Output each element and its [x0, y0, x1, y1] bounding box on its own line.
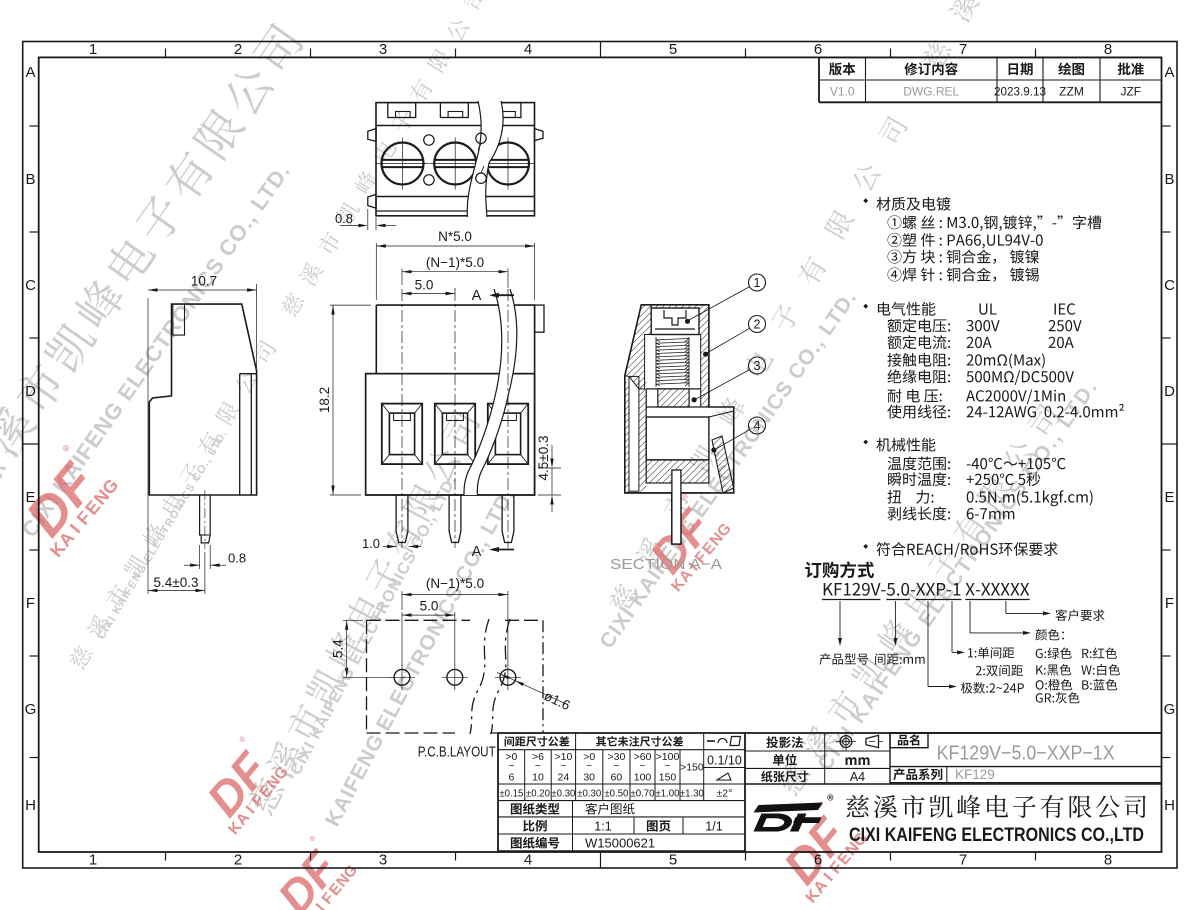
- svg-text:D: D: [1164, 383, 1175, 400]
- svg-text:5: 5: [669, 41, 677, 58]
- svg-text:(N−1)*5.0: (N−1)*5.0: [426, 255, 484, 270]
- svg-text:0.8: 0.8: [228, 551, 246, 566]
- svg-text:C: C: [1164, 277, 1175, 294]
- svg-text:150: 150: [659, 772, 677, 784]
- svg-text:±0.70: ±0.70: [631, 789, 655, 800]
- svg-text:3: 3: [379, 852, 387, 869]
- svg-text:(N−1)*5.0: (N−1)*5.0: [426, 576, 484, 591]
- svg-text:3: 3: [379, 41, 387, 58]
- svg-text:4: 4: [524, 852, 532, 869]
- svg-text:D: D: [25, 383, 36, 400]
- svg-text:5.0: 5.0: [415, 278, 434, 293]
- svg-text:6: 6: [814, 852, 822, 869]
- svg-text:A: A: [472, 288, 482, 304]
- svg-text:H: H: [25, 797, 36, 814]
- svg-text:~: ~: [535, 760, 541, 772]
- svg-text:F: F: [1165, 595, 1174, 612]
- svg-text:3: 3: [754, 359, 761, 373]
- svg-text:KF129: KF129: [955, 767, 995, 782]
- svg-text:H: H: [1164, 797, 1175, 814]
- svg-text:4: 4: [754, 419, 761, 433]
- svg-text:~: ~: [508, 760, 514, 772]
- svg-text:5: 5: [669, 852, 677, 869]
- svg-text:1: 1: [754, 276, 761, 290]
- svg-text:~: ~: [639, 760, 645, 772]
- svg-text:7: 7: [959, 852, 967, 869]
- svg-text:2: 2: [234, 852, 242, 869]
- svg-text:6: 6: [814, 41, 822, 58]
- svg-text:E: E: [25, 489, 35, 506]
- svg-text:60: 60: [611, 772, 623, 784]
- svg-text:2: 2: [754, 318, 761, 332]
- svg-text:JZF: JZF: [1120, 85, 1141, 99]
- svg-text:1: 1: [89, 41, 97, 58]
- svg-text:~: ~: [613, 760, 619, 772]
- svg-text:A: A: [1164, 64, 1174, 81]
- svg-text:7: 7: [959, 41, 967, 58]
- svg-text:P.C.B.LAYOUT: P.C.B.LAYOUT: [418, 744, 496, 761]
- svg-text:W15000621: W15000621: [585, 836, 655, 851]
- svg-text:±0.30: ±0.30: [577, 789, 601, 800]
- svg-text:1: 1: [89, 852, 97, 869]
- svg-text:G: G: [1164, 701, 1176, 718]
- svg-text:E: E: [1164, 489, 1174, 506]
- svg-text:8: 8: [1104, 41, 1112, 58]
- svg-text:1/1: 1/1: [705, 820, 722, 834]
- svg-text:24: 24: [558, 772, 570, 784]
- svg-text:DWG.REL: DWG.REL: [903, 85, 959, 99]
- svg-text:100: 100: [634, 772, 652, 784]
- svg-text:V1.0: V1.0: [830, 85, 855, 99]
- svg-text:~: ~: [560, 760, 566, 772]
- svg-text:30: 30: [583, 772, 595, 784]
- svg-text:B: B: [25, 171, 35, 188]
- svg-text:~: ~: [586, 760, 592, 772]
- svg-text:±0.15: ±0.15: [499, 789, 523, 800]
- svg-text:18.2: 18.2: [317, 387, 332, 413]
- svg-text:F: F: [26, 595, 35, 612]
- svg-text:0.8: 0.8: [335, 211, 353, 226]
- svg-text:B: B: [1164, 171, 1174, 188]
- svg-text:N*5.0: N*5.0: [438, 229, 472, 244]
- svg-text:2: 2: [234, 41, 242, 58]
- svg-text:±1.00: ±1.00: [656, 789, 680, 800]
- svg-text:6: 6: [508, 772, 514, 784]
- svg-text:5.4±0.3: 5.4±0.3: [154, 575, 199, 590]
- svg-text:A4: A4: [850, 770, 865, 784]
- svg-text:4: 4: [524, 41, 532, 58]
- svg-text:±2°: ±2°: [716, 788, 732, 800]
- svg-text:CIXI KAIFENG ELECTRONICS CO.,L: CIXI KAIFENG ELECTRONICS CO.,LTD: [849, 825, 1144, 846]
- svg-text:A: A: [472, 544, 482, 560]
- svg-text:C: C: [25, 277, 36, 294]
- svg-text:4.5±0.3: 4.5±0.3: [536, 436, 551, 481]
- svg-text:0.1/10: 0.1/10: [707, 754, 742, 768]
- svg-text:KF129V−5.0−XXP−1X: KF129V−5.0−XXP−1X: [937, 743, 1115, 765]
- svg-text:G: G: [25, 701, 37, 718]
- svg-text:ZZM: ZZM: [1059, 85, 1084, 99]
- svg-text:>150: >150: [680, 762, 704, 774]
- svg-text:10: 10: [532, 772, 544, 784]
- svg-text:~: ~: [664, 760, 670, 772]
- svg-text:5.0: 5.0: [420, 599, 439, 614]
- svg-text:±0.50: ±0.50: [604, 789, 628, 800]
- svg-text:5.4: 5.4: [331, 639, 346, 658]
- svg-text:1.0: 1.0: [362, 536, 380, 551]
- svg-text:±1.30: ±1.30: [680, 789, 704, 800]
- svg-text:1:1: 1:1: [594, 820, 611, 834]
- svg-text:A: A: [25, 64, 35, 81]
- svg-text:10.7: 10.7: [191, 274, 217, 289]
- svg-text:SECTION A−A: SECTION A−A: [610, 556, 722, 573]
- svg-text:±0.30: ±0.30: [551, 789, 575, 800]
- svg-text:2023.9.13: 2023.9.13: [994, 85, 1046, 99]
- svg-text:8: 8: [1104, 852, 1112, 869]
- svg-text:±0.20: ±0.20: [526, 789, 550, 800]
